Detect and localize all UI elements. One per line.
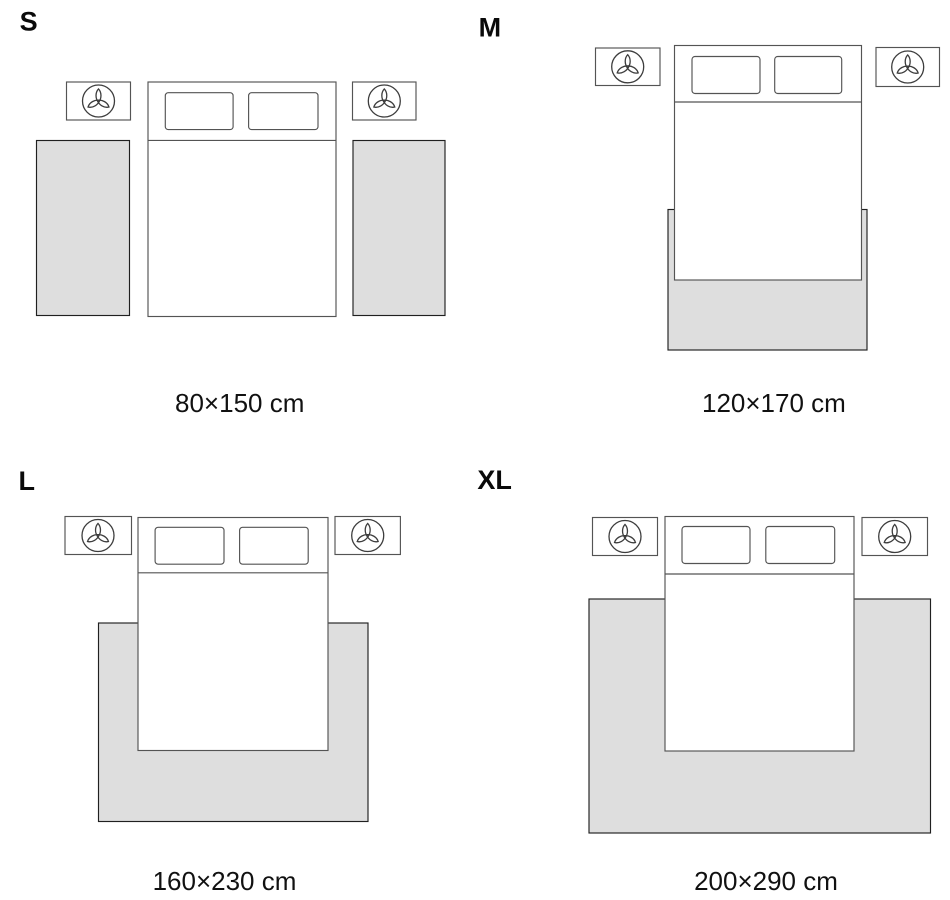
svg-text:200×290 cm: 200×290 cm [694, 866, 838, 896]
svg-text:80×150 cm: 80×150 cm [175, 388, 304, 418]
svg-text:L: L [19, 466, 36, 496]
svg-text:160×230 cm: 160×230 cm [153, 866, 297, 896]
svg-text:M: M [479, 12, 502, 42]
svg-text:120×170 cm: 120×170 cm [702, 388, 846, 418]
svg-text:XL: XL [477, 465, 512, 495]
svg-text:S: S [20, 6, 38, 36]
